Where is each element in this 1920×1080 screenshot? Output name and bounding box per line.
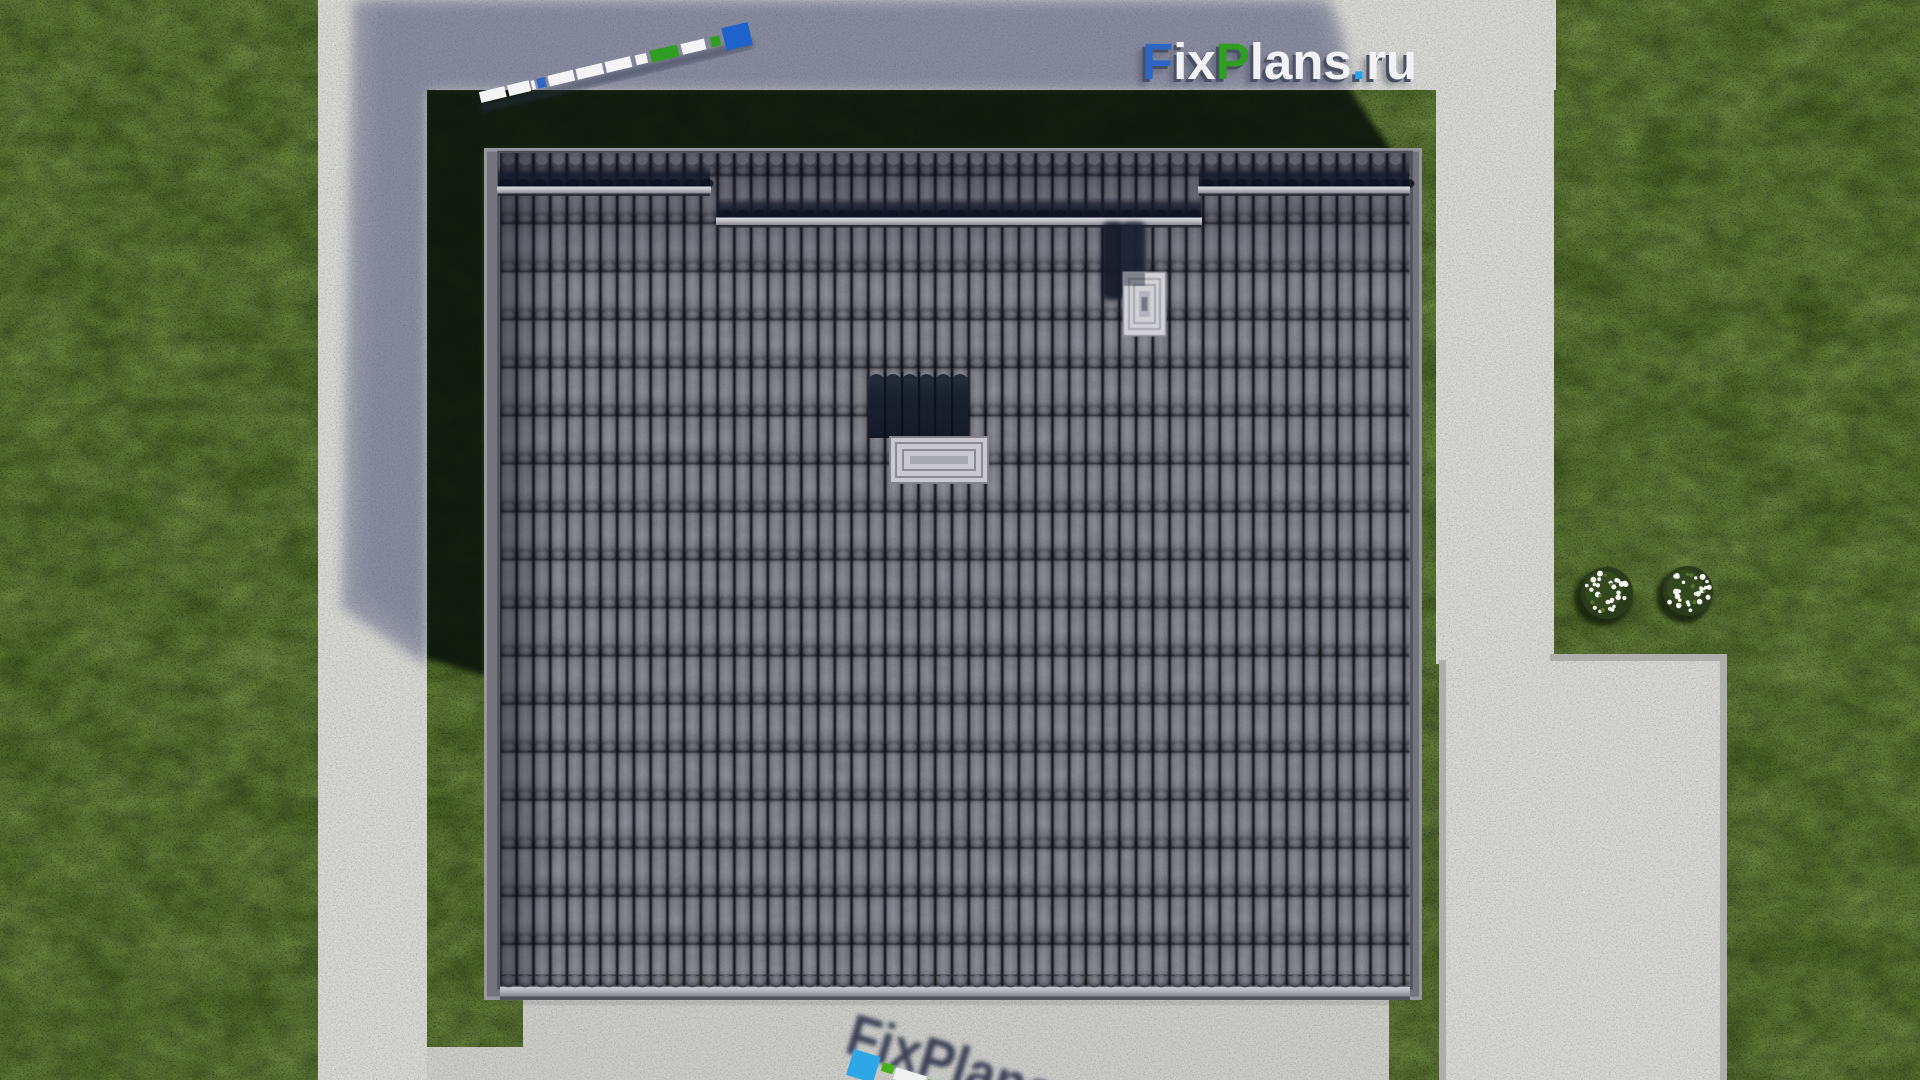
svg-text:FixPlans.ru: FixPlans.ru [1142, 33, 1417, 90]
